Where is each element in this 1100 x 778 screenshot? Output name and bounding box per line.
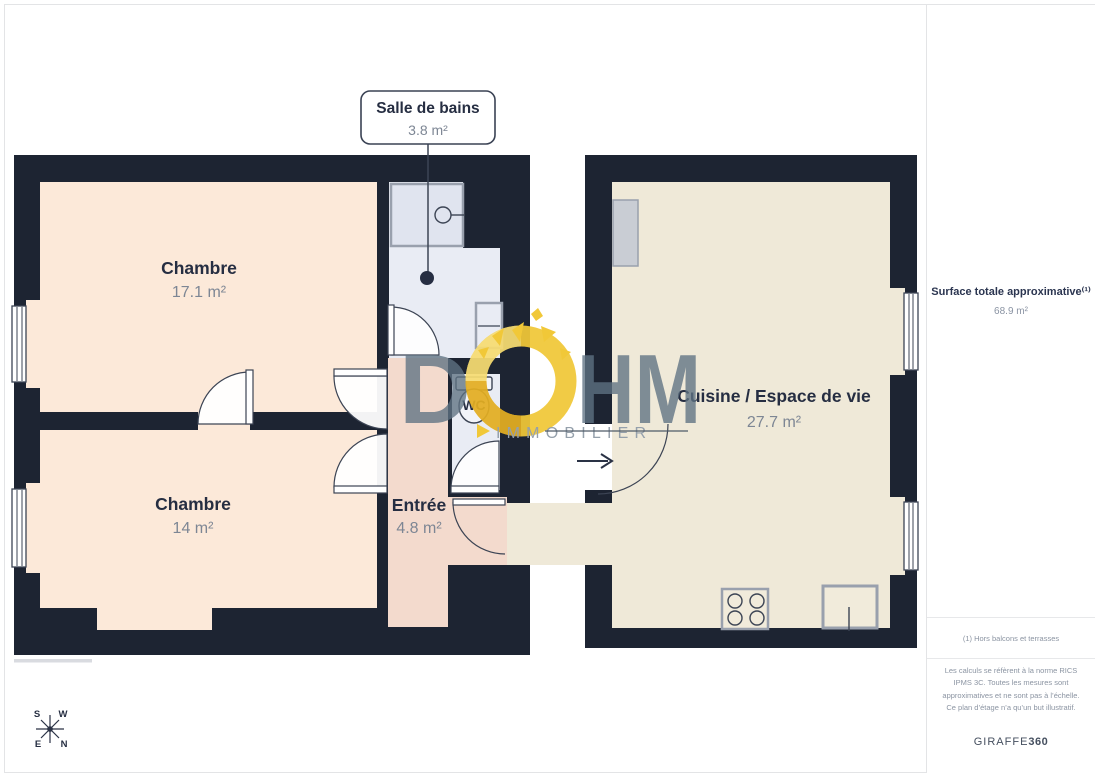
logo-sparkle (531, 308, 543, 321)
door-leaf (388, 305, 394, 355)
giraffe360-logo: GIRAFFE360 (927, 736, 1095, 748)
callout-title: Salle de bains (376, 100, 479, 117)
door-leaf (246, 370, 253, 424)
callout-leader-dot (420, 271, 434, 285)
logo-subtitle: IMMOBILIER (496, 425, 652, 442)
door-leaf (334, 369, 387, 376)
room-chambre2-floor (40, 430, 377, 608)
brand-name: GIRAFFE (974, 736, 1029, 748)
compass-center-dot (47, 726, 53, 732)
room-entree-extension-floor (448, 497, 507, 565)
window-right-2 (890, 497, 918, 575)
door-leaf (451, 486, 499, 493)
legal-disclaimer: Les calculs se réfèrent à la norme RICS … (941, 665, 1081, 715)
chambre2-area: 14 m² (173, 520, 215, 537)
passage-threshold-floor (507, 503, 612, 565)
surface-total-value: 68.9 m² (927, 306, 1095, 317)
brand-suffix: 360 (1028, 736, 1048, 748)
cuisine-label: Cuisine / Espace de vie (677, 386, 871, 406)
cuisine-area: 27.7 m² (747, 414, 802, 431)
floor-plan-page: Salle de bains 3.8 m² Chambre 17.1 m² Ch… (0, 0, 1100, 778)
surface-total-title: Surface totale approximative⁽¹⁾ (927, 285, 1095, 298)
window-glass (904, 502, 918, 570)
window-glass (12, 489, 26, 567)
compass-s: S (34, 709, 40, 720)
room-chambre2-floor-notch (97, 608, 212, 630)
scale-bar (14, 659, 92, 663)
compass-w: W (59, 709, 68, 720)
window-left-2 (12, 483, 40, 573)
logo-letter-d: D (399, 334, 471, 444)
compass-e: E (35, 739, 41, 750)
window-recess (890, 497, 905, 575)
window-glass (904, 293, 918, 370)
chambre1-area: 17.1 m² (172, 284, 227, 301)
info-sidebar: Surface totale approximative⁽¹⁾ 68.9 m² … (926, 5, 1095, 773)
window-glass (12, 306, 26, 382)
compass-icon: S W E N (34, 709, 68, 750)
callout-area: 3.8 m² (408, 122, 448, 138)
chambre1-label: Chambre (161, 258, 237, 278)
kitchen-sink-icon (823, 586, 877, 631)
stove-icon (722, 589, 768, 629)
entree-area: 4.8 m² (396, 520, 442, 537)
window-recess (26, 483, 40, 573)
compass-n: N (61, 739, 68, 750)
surface-total-block: Surface totale approximative⁽¹⁾ 68.9 m² (927, 285, 1095, 317)
window-recess (890, 288, 905, 375)
chambre2-label: Chambre (155, 494, 231, 514)
entree-label: Entrée (392, 495, 447, 515)
footnote: (1) Hors balcons et terrasses (927, 617, 1095, 659)
door-leaf (453, 499, 505, 505)
window-right-1 (890, 288, 918, 375)
floor-plan: Salle de bains 3.8 m² Chambre 17.1 m² Ch… (0, 0, 925, 778)
kitchen-appliance-icon (613, 200, 638, 266)
door-leaf (334, 486, 387, 493)
window-recess (26, 300, 40, 388)
window-left-1 (12, 300, 40, 388)
kitchen-sink-body (823, 586, 877, 628)
